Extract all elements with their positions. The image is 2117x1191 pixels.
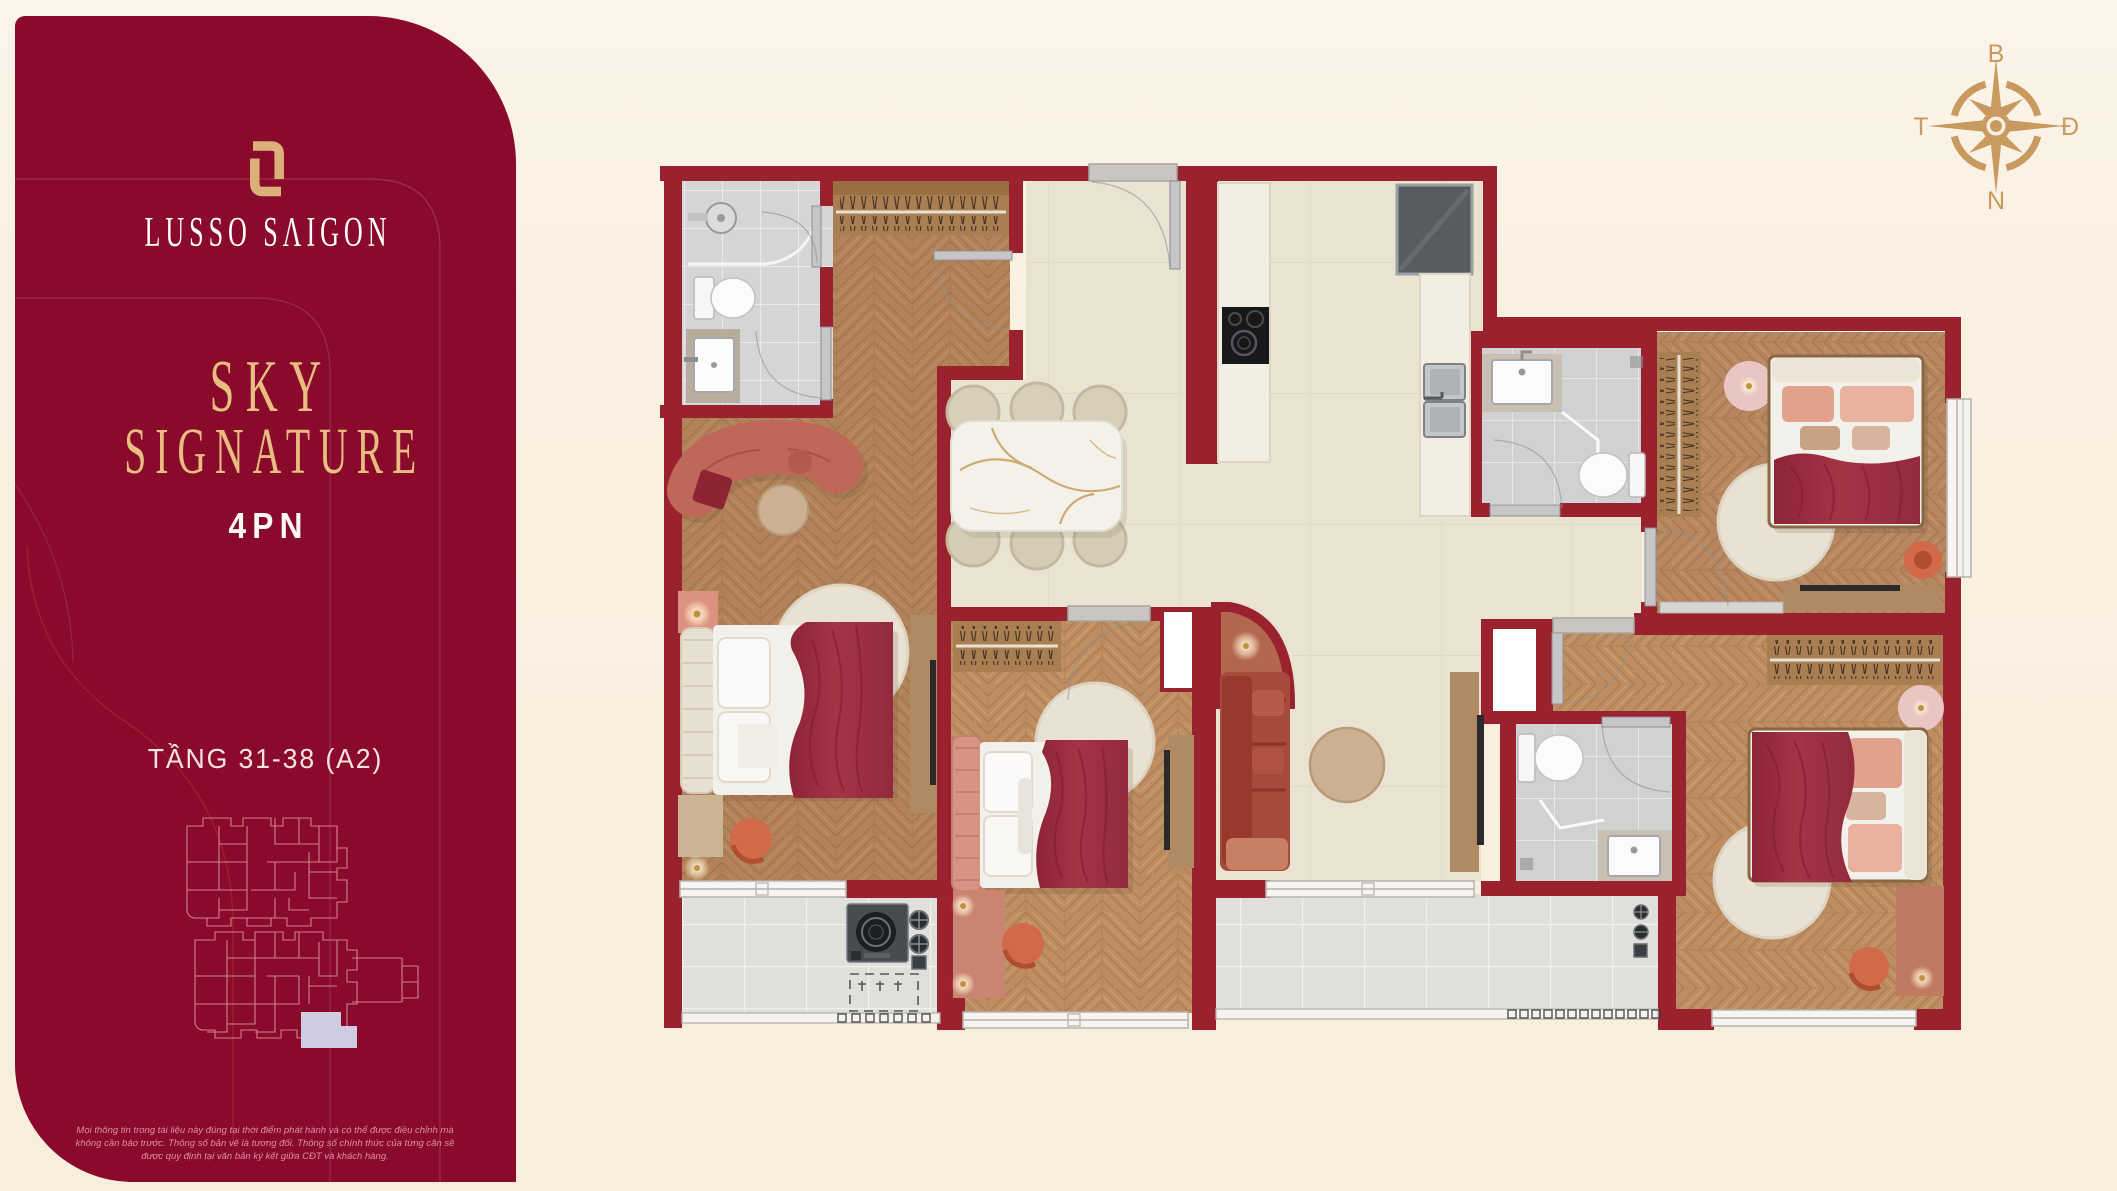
svg-text:N: N bbox=[1987, 187, 2005, 215]
svg-text:Đ: Đ bbox=[2061, 113, 2079, 141]
svg-text:B: B bbox=[1988, 40, 2005, 68]
svg-text:T: T bbox=[1913, 113, 1928, 141]
